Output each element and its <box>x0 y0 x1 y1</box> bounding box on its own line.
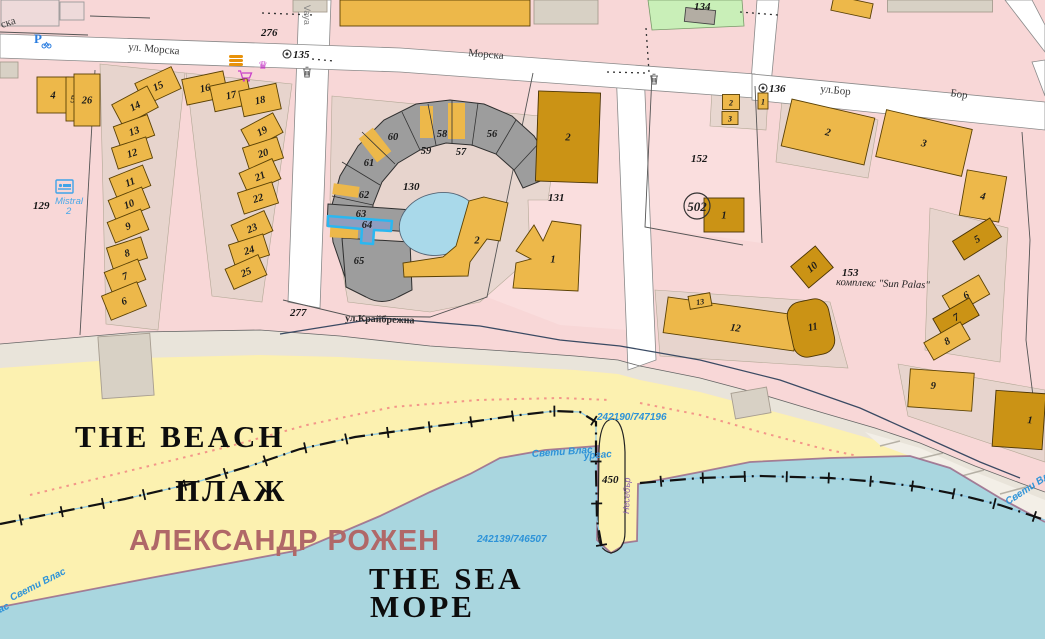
building-4[interactable]: 4 <box>959 170 1006 222</box>
building-number: 2 <box>473 236 480 247</box>
section-label-62: 62 <box>359 190 370 201</box>
building-3[interactable]: 3 <box>722 112 738 125</box>
section-label-59: 59 <box>421 146 432 157</box>
label-plazh: ПЛАЖ <box>175 473 287 508</box>
crown-icon[interactable]: ♛ <box>258 59 268 72</box>
building-4[interactable]: 4 <box>37 77 69 113</box>
building-number: 13 <box>695 297 704 307</box>
section-label-57: 57 <box>456 147 467 158</box>
building-number: 1 <box>721 211 726 222</box>
coordinate-label-upper: 242190/747196 <box>596 412 667 423</box>
building-number: 3 <box>727 115 732 124</box>
building-number: 2 <box>564 132 571 143</box>
boundary-tick <box>828 472 829 483</box>
section-label-58: 58 <box>437 129 448 140</box>
boundary-tick <box>660 476 661 487</box>
hotel-mistral-label-2: 2 <box>65 206 72 217</box>
building-number: 26 <box>81 96 93 107</box>
boundary-tick <box>870 476 871 487</box>
building-2[interactable]: 2 <box>535 91 600 183</box>
building-number: 1 <box>761 98 765 107</box>
street-label-vaya: Vaya <box>302 5 312 25</box>
parcel-label-129: 129 <box>33 200 50 212</box>
restaurant-icon[interactable] <box>229 55 243 66</box>
section-label-61: 61 <box>364 158 375 169</box>
parcel-label-152: 152 <box>691 153 708 165</box>
building-block <box>534 0 598 24</box>
section-label-60: 60 <box>388 132 399 143</box>
boundary-label-burgas-mid: ургас <box>582 449 612 462</box>
building-block <box>340 0 530 26</box>
parcel-label-134: 134 <box>694 1 711 13</box>
building-26[interactable]: 26 <box>74 74 100 126</box>
building-block <box>0 62 18 78</box>
boundary-label-nesebar: Несебър <box>621 477 632 514</box>
building-1[interactable]: 1 <box>758 93 768 109</box>
map-sheet-label-502: 502 <box>687 199 707 214</box>
label-the-beach: THE BEACH <box>75 419 285 454</box>
building-block <box>60 2 84 20</box>
marker-label-277: 277 <box>289 307 307 319</box>
building-2[interactable]: 2 <box>723 95 740 110</box>
section-label-64-selected: 64 <box>362 220 373 231</box>
section-label-65: 65 <box>354 256 365 267</box>
svg-text:P: P <box>34 31 42 46</box>
marker-label-135: 135 <box>293 49 310 61</box>
parcel-label-130: 130 <box>403 181 420 193</box>
coordinate-label-lower: 242139/746507 <box>476 534 547 545</box>
building-block <box>98 333 154 398</box>
building-number: 1 <box>550 255 555 266</box>
building-number: 2 <box>728 99 733 108</box>
section-label-56: 56 <box>487 129 498 140</box>
marker-label-276: 276 <box>260 27 278 39</box>
label-more: МОРЕ <box>370 589 475 624</box>
parcel-label-131: 131 <box>548 192 565 204</box>
marker-label-450: 450 <box>601 474 619 486</box>
building-block <box>731 387 771 419</box>
section-label-63: 63 <box>356 209 367 220</box>
building-number: 4 <box>49 91 55 102</box>
map-viewport: 4526151413121110987616171819202122232425… <box>0 0 1045 639</box>
building-9[interactable]: 9 <box>908 369 974 411</box>
building-number: 1 <box>1027 415 1033 426</box>
map-canvas[interactable]: 4526151413121110987616171819202122232425… <box>0 0 1045 639</box>
marker-label-136: 136 <box>769 83 786 95</box>
label-beach-name-aleksandr-rozhen: АЛЕКСАНДР РОЖЕН <box>129 525 440 557</box>
building-block <box>888 0 993 12</box>
building-1[interactable]: 1 <box>992 390 1045 449</box>
